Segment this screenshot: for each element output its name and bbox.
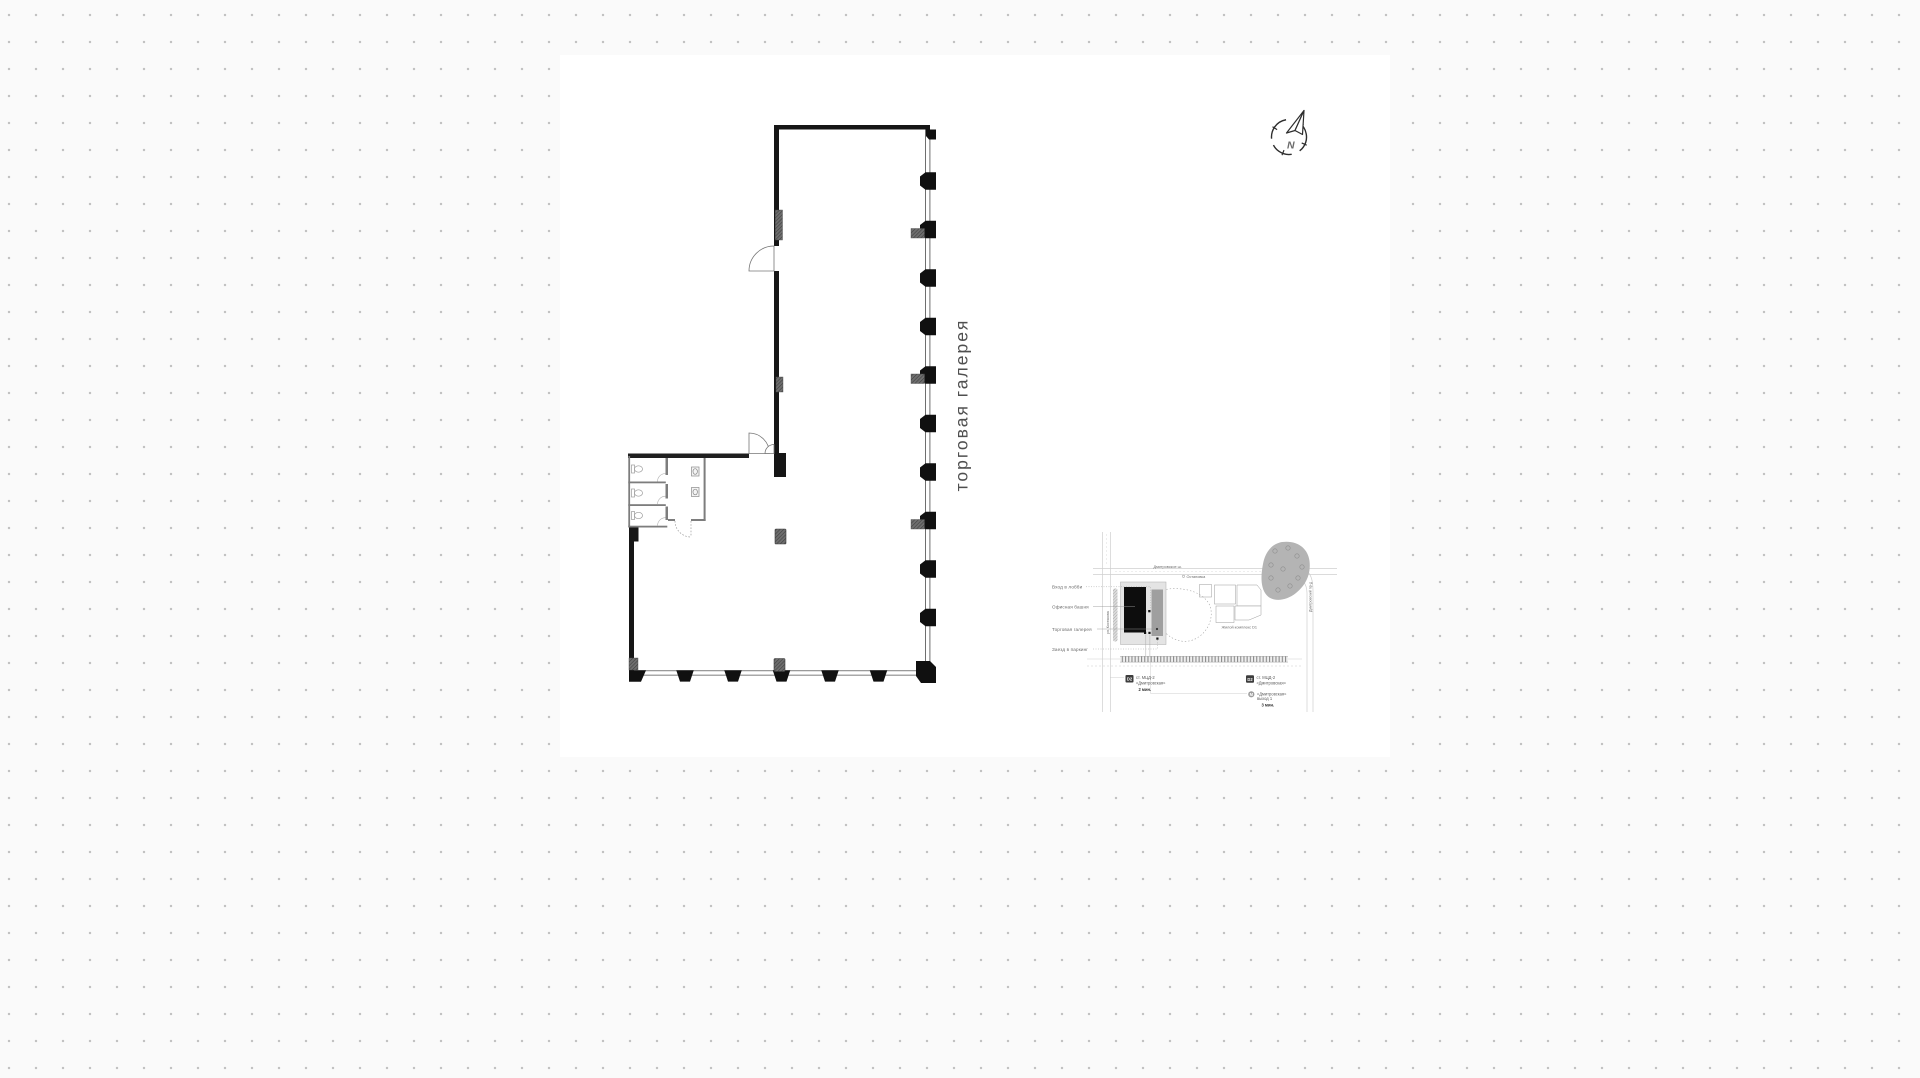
exterior-walls (628, 125, 930, 671)
compass-circle (1265, 113, 1314, 162)
residential-buildings (1200, 585, 1262, 623)
callout-parking: Заезд в паркинг (1052, 647, 1088, 652)
gallery-label: торговая галерея (951, 315, 973, 496)
d2-badge-label: D2 (1247, 677, 1253, 682)
toilet-fixtures (632, 465, 643, 520)
site-map: Вход в лобби Офисная башня Торговая гале… (1045, 528, 1337, 712)
station-left: D2 ст. МЦД-2 «Дмитровская» 2 мин. (1126, 675, 1167, 692)
office-tower-footprint (1124, 587, 1146, 633)
floor-plan (600, 95, 960, 695)
railway (1087, 656, 1302, 666)
station-line: ст. МЦД-2 (1136, 675, 1155, 680)
compass-north-icon: N (1259, 107, 1319, 167)
north-arrow (1287, 111, 1305, 135)
station-right: D2 ст. МЦД-2 «Дмитровская» (1246, 675, 1287, 686)
walk-time: 3 мин. (1262, 703, 1275, 708)
left-street-label: ул. Костякова (1106, 611, 1110, 634)
right-road-label: Дмитровский пр-д (1309, 581, 1313, 612)
metro-exit-label: выход 1 (1257, 696, 1273, 701)
restroom-block (628, 456, 705, 537)
street-strip (1113, 589, 1118, 642)
callout-office-tower: Офисная башня (1052, 604, 1089, 609)
metro-icon-letter: М (1250, 692, 1254, 697)
canvas: торговая галерея N (0, 0, 1920, 1078)
callout-gallery: Торговая галерея (1052, 627, 1092, 632)
north-letter: N (1287, 140, 1295, 152)
park (1261, 542, 1309, 600)
sink-fixtures (692, 467, 700, 497)
map-callouts: Вход в лобби Офисная башня Торговая гале… (1052, 585, 1092, 652)
callout-lobby: Вход в лобби (1052, 585, 1083, 590)
walk-time: 2 мин. (1139, 687, 1152, 692)
gallery-leader-dot (1156, 628, 1158, 630)
metro-exit: М «Дмитровская» выход 1 3 мин. (1248, 691, 1287, 707)
door-swings (749, 246, 774, 454)
complex-label: Жилой комплекс D1 (1222, 626, 1258, 630)
station-name: «Дмитровская» (1257, 681, 1287, 686)
bus-stop-icon (1182, 575, 1184, 577)
d2-badge-label: D2 (1127, 677, 1133, 682)
interior-columns (774, 529, 786, 672)
site-building (1121, 582, 1167, 645)
top-road-label: Дмитровское ш. (1154, 565, 1182, 569)
station-line: ст. МЦД-2 (1257, 675, 1276, 680)
restroom-entry-arc (675, 521, 691, 537)
station-name: «Дмитровская» (1136, 681, 1166, 686)
bus-stop-label: Остановка (1187, 575, 1207, 579)
stall-door-arcs (658, 474, 666, 526)
